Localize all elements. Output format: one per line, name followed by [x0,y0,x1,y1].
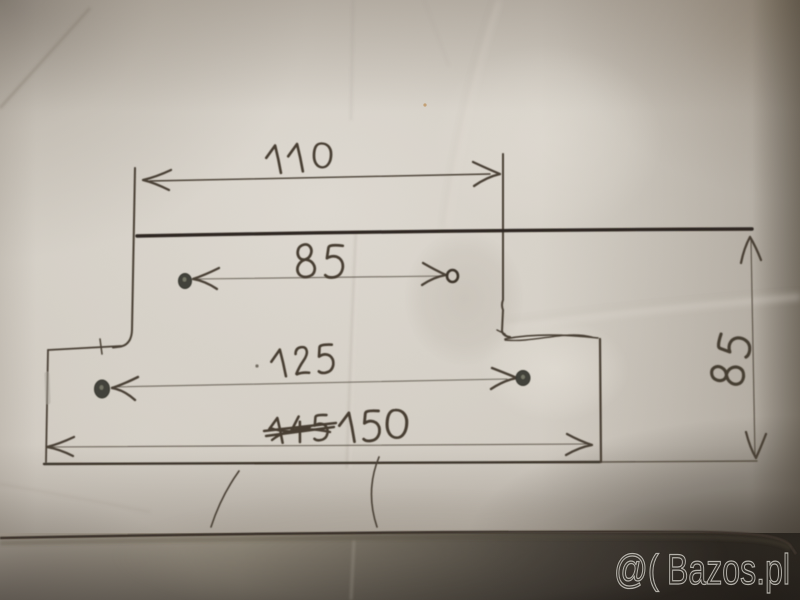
svg-text:Bazos.pl: Bazos.pl [667,546,790,594]
svg-text:@(: @( [614,546,659,592]
